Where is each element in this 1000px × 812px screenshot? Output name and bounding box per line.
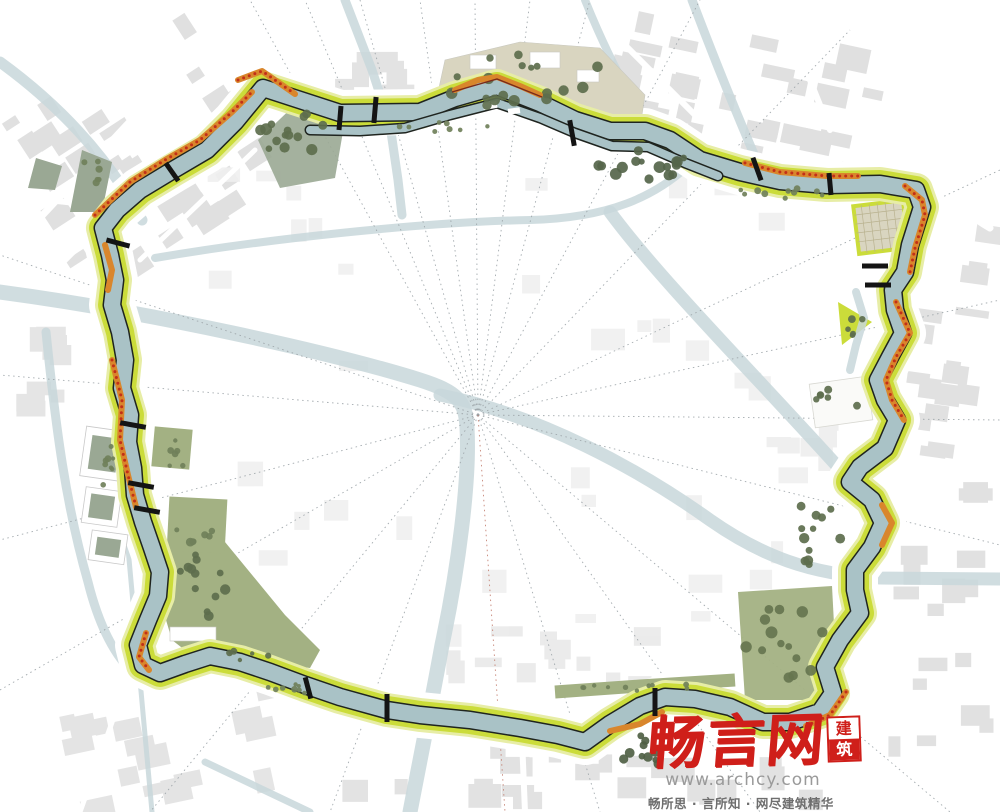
inner-olive-block — [167, 497, 228, 554]
masterplan-map-svg — [0, 0, 1000, 812]
masterplan-canvas: 畅言网 建 筑 www.archcy.com 畅所思 · 言所知 · 网尽建筑精… — [0, 0, 1000, 812]
site-logo: 畅言网 — [645, 710, 827, 775]
logo-slogan: 畅所思 · 言所知 · 网尽建筑精华 — [648, 793, 1000, 812]
watermark: 畅言网 建 筑 www.archcy.com 畅所思 · 言所知 · 网尽建筑精… — [648, 712, 1000, 812]
logo-seal: 建 筑 — [826, 715, 862, 762]
